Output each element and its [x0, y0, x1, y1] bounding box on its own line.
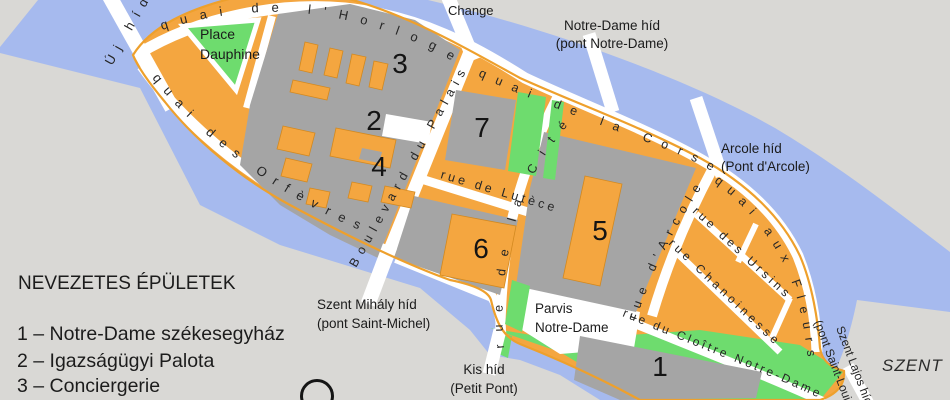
label-notre-dame-bridge-2: (pont Notre-Dame): [556, 36, 669, 51]
label-parvis-1: Parvis: [535, 301, 573, 316]
paris-ile-de-la-cite-map: quai de l'Horloge quai des Orfèvres quai…: [0, 0, 950, 400]
marker-5: 5: [592, 215, 608, 246]
label-saint-michel-bridge-1: Szent Mihály híd: [317, 297, 417, 312]
legend-item-2: 2 – Igazságügyi Palota: [17, 350, 214, 372]
legend-item-3: 3 – Conciergerie: [17, 375, 160, 397]
label-parvis-2: Notre-Dame: [535, 320, 609, 335]
label-place-dauphine-2: Dauphine: [200, 46, 260, 62]
marker-4: 4: [371, 151, 387, 182]
label-arcole-bridge-1: Arcole híd: [721, 141, 782, 156]
legend-item-1: 1 – Notre-Dame székesegyház: [17, 323, 285, 345]
label-petit-pont-2: (Petit Pont): [450, 381, 518, 396]
marker-1: 1: [652, 351, 668, 382]
label-petit-pont-1: Kis híd: [463, 362, 504, 377]
marker-7: 7: [474, 112, 490, 143]
label-szent-lajos-sziget: SZENT: [882, 356, 943, 375]
map-svg: quai de l'Horloge quai des Orfèvres quai…: [0, 0, 950, 400]
label-pont-au-change: Change: [448, 3, 494, 18]
label-saint-michel-bridge-2: (pont Saint-Michel): [317, 316, 430, 331]
marker-6: 6: [473, 233, 489, 264]
marker-3: 3: [392, 48, 408, 79]
marker-2: 2: [366, 105, 382, 136]
label-place-dauphine-1: Place: [200, 26, 235, 42]
label-arcole-bridge-2: (Pont d'Arcole): [721, 159, 810, 174]
label-notre-dame-bridge-1: Notre-Dame híd: [564, 18, 660, 33]
legend-title: NEVEZETES ÉPÜLETEK: [18, 273, 236, 294]
